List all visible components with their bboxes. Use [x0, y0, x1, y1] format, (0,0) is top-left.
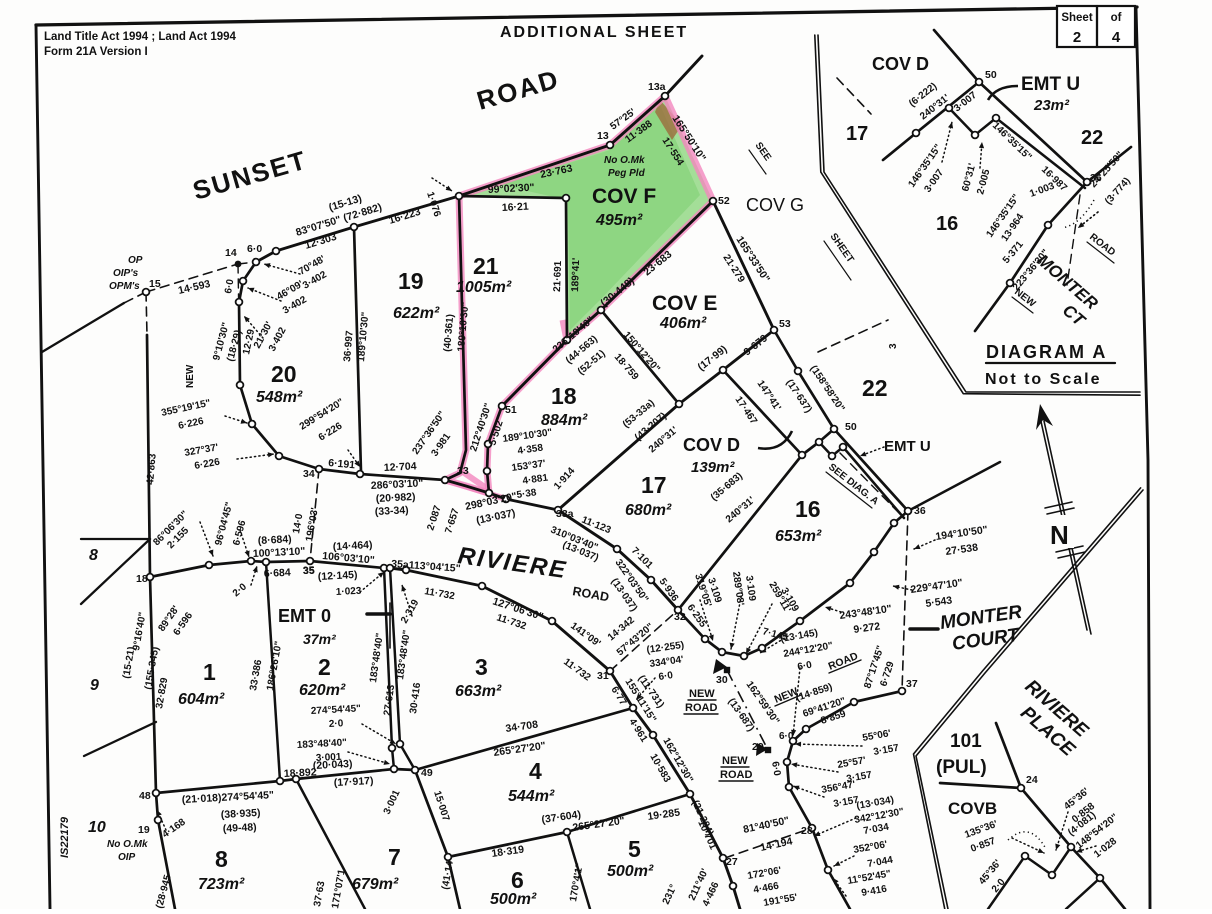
svg-text:37: 37 [906, 678, 918, 690]
svg-text:EMT 0: EMT 0 [278, 606, 331, 626]
svg-text:DIAGRAM A: DIAGRAM A [986, 342, 1107, 362]
svg-text:10: 10 [88, 819, 106, 836]
svg-text:3·001: 3·001 [316, 752, 343, 764]
svg-text:8: 8 [89, 547, 98, 564]
svg-text:14: 14 [225, 247, 237, 259]
svg-text:ADDITIONAL SHEET: ADDITIONAL SHEET [500, 24, 688, 41]
svg-text:COV E: COV E [652, 292, 717, 315]
svg-text:(33-34): (33-34) [375, 504, 409, 518]
svg-text:500m²: 500m² [607, 863, 654, 880]
svg-text:2: 2 [318, 654, 331, 680]
svg-text:24: 24 [1026, 774, 1038, 786]
svg-text:22: 22 [862, 375, 888, 401]
svg-text:13a: 13a [648, 81, 666, 93]
svg-text:(12·145): (12·145) [318, 569, 358, 583]
svg-text:(49-48): (49-48) [223, 821, 257, 835]
svg-text:(17·917): (17·917) [334, 775, 374, 789]
svg-text:101: 101 [950, 731, 982, 752]
svg-text:COV F: COV F [592, 185, 656, 208]
svg-text:COV D: COV D [683, 435, 740, 455]
svg-text:9: 9 [90, 677, 99, 694]
svg-text:544m²: 544m² [508, 788, 555, 805]
svg-text:679m²: 679m² [352, 876, 399, 893]
svg-text:52: 52 [718, 195, 730, 207]
svg-text:15: 15 [149, 278, 161, 290]
svg-text:EMT U: EMT U [884, 438, 931, 455]
svg-text:723m²: 723m² [198, 876, 245, 893]
svg-text:2: 2 [1073, 29, 1081, 46]
svg-text:34: 34 [303, 468, 315, 480]
svg-text:Land Title Act 1994 ; Land Ac: Land Title Act 1994 ; Land Act 1994 [44, 31, 237, 43]
svg-text:16: 16 [795, 496, 821, 522]
svg-text:7: 7 [388, 844, 401, 870]
svg-text:NEW: NEW [185, 364, 196, 388]
svg-text:99°02'30": 99°02'30" [488, 182, 535, 196]
svg-text:49: 49 [421, 767, 433, 779]
svg-text:622m²: 622m² [393, 305, 440, 322]
svg-text:(8·684): (8·684) [258, 533, 292, 547]
svg-text:Form 21A Version I: Form 21A Version I [44, 46, 148, 58]
svg-text:29: 29 [752, 741, 764, 753]
svg-text:18·892: 18·892 [284, 766, 317, 780]
svg-text:680m²: 680m² [625, 502, 672, 519]
svg-text:OP: OP [128, 255, 143, 266]
svg-text:35: 35 [303, 564, 315, 577]
svg-text:23m²: 23m² [1033, 97, 1070, 114]
svg-text:51: 51 [505, 404, 517, 416]
svg-text:33: 33 [457, 465, 469, 477]
svg-text:18: 18 [136, 573, 148, 585]
svg-text:663m²: 663m² [455, 683, 502, 700]
svg-text:6: 6 [511, 867, 524, 893]
svg-text:620m²: 620m² [299, 682, 346, 699]
svg-text:189°41': 189°41' [570, 258, 582, 293]
svg-text:COVB: COVB [948, 799, 997, 818]
svg-text:19: 19 [138, 824, 150, 836]
svg-text:Peg Pld: Peg Pld [608, 168, 646, 179]
svg-text:6·684: 6·684 [264, 567, 292, 580]
svg-text:6·0: 6·0 [247, 243, 262, 255]
svg-text:4: 4 [529, 758, 542, 784]
svg-text:16·21: 16·21 [502, 201, 530, 214]
svg-text:604m²: 604m² [178, 691, 225, 708]
svg-text:16: 16 [936, 213, 958, 235]
svg-text:6·0: 6·0 [658, 670, 674, 683]
svg-text:COV D: COV D [872, 54, 929, 74]
svg-text:(38·935): (38·935) [221, 807, 261, 821]
svg-text:NEW: NEW [722, 755, 748, 767]
svg-text:50: 50 [845, 421, 857, 433]
svg-text:(20·982): (20·982) [376, 491, 416, 505]
svg-text:OPM's: OPM's [109, 281, 140, 292]
svg-text:139m²: 139m² [691, 459, 735, 476]
svg-text:17: 17 [846, 123, 868, 145]
svg-text:53: 53 [779, 318, 791, 330]
svg-text:3: 3 [475, 654, 488, 680]
svg-text:495m²: 495m² [595, 212, 643, 229]
svg-text:6·0: 6·0 [779, 731, 794, 742]
svg-text:28: 28 [801, 825, 813, 837]
svg-text:37m²: 37m² [303, 631, 336, 647]
svg-text:COV G: COV G [746, 195, 804, 215]
svg-text:ROAD: ROAD [720, 769, 752, 781]
svg-text:17: 17 [641, 472, 667, 498]
svg-text:12·704: 12·704 [384, 460, 417, 474]
svg-text:IS22179: IS22179 [59, 816, 71, 858]
svg-text:30: 30 [716, 674, 728, 686]
svg-text:No O.Mk: No O.Mk [604, 155, 645, 166]
svg-text:of: of [1111, 12, 1122, 24]
svg-text:2·0: 2·0 [329, 718, 344, 730]
svg-text:1: 1 [203, 659, 216, 685]
svg-text:18: 18 [551, 383, 577, 409]
svg-text:Not to Scale: Not to Scale [985, 371, 1101, 388]
svg-text:NEW: NEW [689, 688, 715, 700]
svg-text:3: 3 [888, 343, 899, 349]
svg-text:406m²: 406m² [659, 315, 707, 332]
svg-text:48: 48 [139, 790, 151, 802]
svg-text:50: 50 [985, 69, 997, 81]
svg-text:653m²: 653m² [775, 528, 822, 545]
svg-text:500m²: 500m² [490, 891, 537, 908]
svg-text:31: 31 [597, 670, 609, 682]
svg-text:1·023: 1·023 [336, 586, 363, 598]
svg-text:No O.Mk: No O.Mk [107, 839, 148, 850]
svg-text:EMT U: EMT U [1021, 74, 1080, 95]
svg-text:21: 21 [473, 253, 499, 279]
svg-text:OIP: OIP [118, 852, 136, 863]
svg-text:8: 8 [215, 846, 228, 872]
svg-text:1005m²: 1005m² [456, 279, 512, 296]
svg-text:21·691: 21·691 [552, 260, 564, 292]
svg-text:6·191: 6·191 [328, 457, 356, 471]
svg-text:5: 5 [628, 836, 641, 862]
svg-text:22: 22 [1081, 127, 1103, 149]
svg-text:13: 13 [597, 130, 609, 142]
svg-text:(PUL): (PUL) [936, 757, 987, 778]
svg-text:(14·464): (14·464) [333, 539, 373, 553]
svg-text:Sheet: Sheet [1061, 12, 1092, 24]
svg-text:19: 19 [398, 268, 424, 294]
svg-text:OIP's: OIP's [113, 268, 139, 279]
svg-text:32: 32 [674, 611, 686, 623]
svg-text:33a: 33a [556, 508, 574, 520]
svg-text:20: 20 [271, 361, 297, 387]
svg-text:4: 4 [1112, 29, 1121, 46]
svg-text:N: N [1050, 520, 1069, 550]
svg-text:884m²: 884m² [541, 412, 588, 429]
svg-text:36: 36 [914, 505, 926, 517]
svg-text:548m²: 548m² [256, 389, 303, 406]
svg-text:ROAD: ROAD [685, 702, 717, 714]
svg-text:27: 27 [726, 856, 738, 868]
